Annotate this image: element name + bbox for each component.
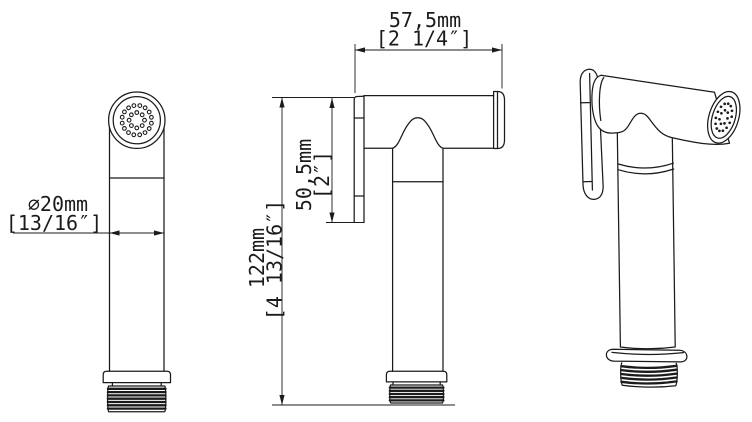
front-face-outer-circle — [109, 92, 165, 148]
persp-handle-fill — [617, 132, 675, 347]
spray-hole — [715, 127, 718, 130]
dimensions: ⌀20mm [13/16″] 57,5mm [2 1/4″] 50,5mm [2… — [6, 8, 502, 405]
persp-thread — [621, 363, 678, 387]
spray-hole — [718, 130, 721, 133]
spray-hole — [728, 121, 731, 124]
spray-hole — [725, 126, 728, 129]
dim-totalheight-inch-label: [4 13/16″] — [263, 200, 287, 320]
technical-drawing-sheet: ⌀20mm [13/16″] 57,5mm [2 1/4″] 50,5mm [2… — [0, 0, 752, 422]
spray-hole — [722, 129, 725, 132]
spray-hole — [723, 103, 726, 106]
spray-hole — [730, 115, 733, 118]
spray-hole — [726, 111, 729, 114]
front-thread — [108, 386, 166, 412]
spray-hole — [720, 112, 723, 115]
dim-diameter-inch-label: [13/16″] — [6, 211, 102, 235]
side-face-capsule — [494, 92, 505, 149]
spray-hole — [718, 118, 721, 121]
spray-hole — [729, 105, 732, 108]
dim-headheight-inch-label: [2″] — [310, 151, 334, 199]
side-lever — [354, 96, 364, 222]
spray-hole — [714, 122, 717, 125]
side-flange — [386, 371, 446, 382]
bidet-sprayer-drawing: ⌀20mm [13/16″] 57,5mm [2 1/4″] 50,5mm [2… — [0, 0, 752, 422]
spray-hole — [731, 109, 734, 112]
side-fillet-hump — [393, 118, 443, 148]
spray-hole — [715, 117, 718, 120]
perspective-view — [580, 69, 746, 387]
spray-hole — [726, 117, 729, 120]
dim-width-extension-lines — [355, 44, 502, 93]
spray-hole — [720, 105, 723, 108]
front-flange — [103, 371, 170, 382]
spray-hole — [720, 122, 723, 125]
side-view — [354, 92, 504, 404]
persp-flange — [606, 349, 687, 362]
spray-hole — [727, 102, 730, 105]
front-view — [103, 92, 170, 412]
dim-width-inch-label: [2 1/4″] — [376, 27, 472, 51]
spray-hole — [723, 122, 726, 125]
side-thread — [390, 385, 444, 403]
side-lever-ticks — [354, 118, 364, 196]
spray-hole — [724, 109, 727, 112]
spray-hole — [717, 110, 720, 113]
